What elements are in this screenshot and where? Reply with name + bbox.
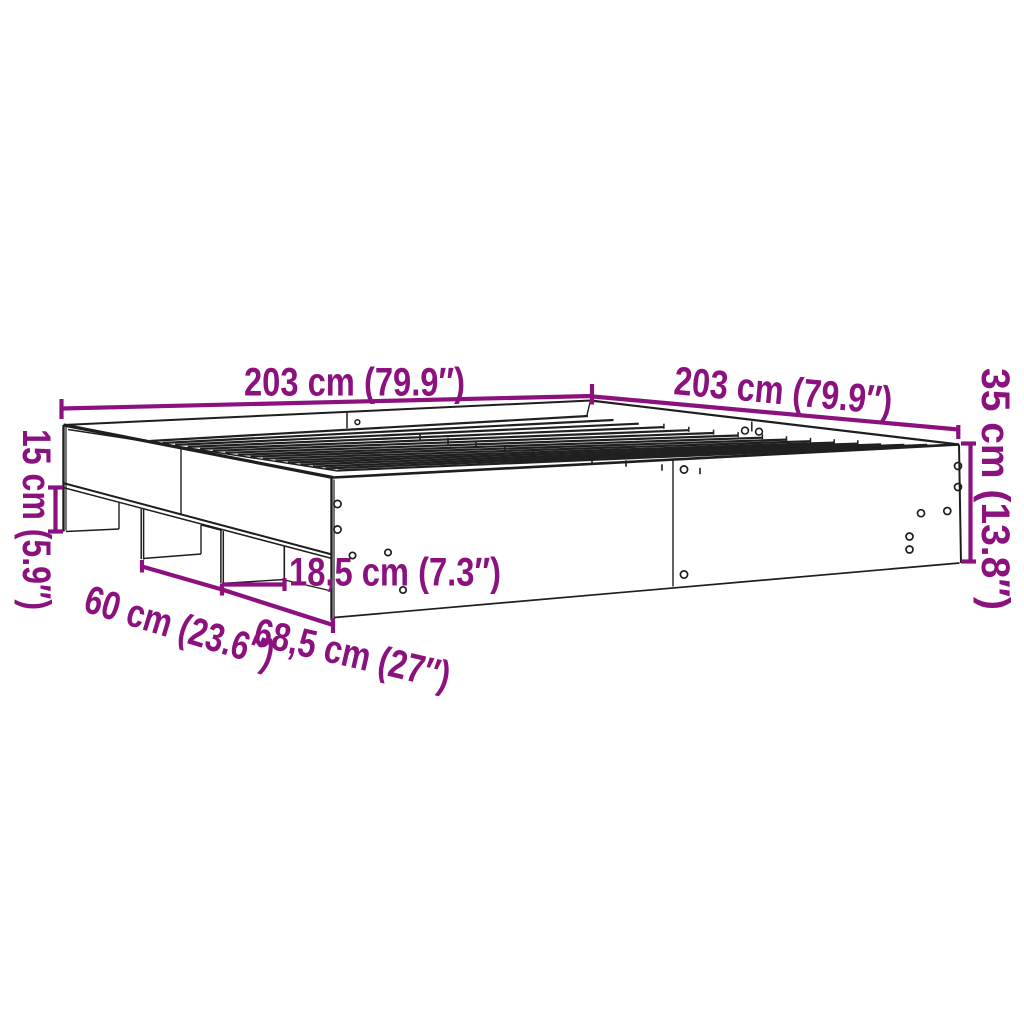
svg-text:203 cm (79.9″): 203 cm (79.9″) — [244, 360, 465, 404]
svg-text:35 cm (13.8″): 35 cm (13.8″) — [973, 368, 1017, 610]
svg-text:15 cm (5.9″): 15 cm (5.9″) — [14, 429, 58, 610]
svg-text:18,5 cm (7.3″): 18,5 cm (7.3″) — [289, 551, 501, 595]
